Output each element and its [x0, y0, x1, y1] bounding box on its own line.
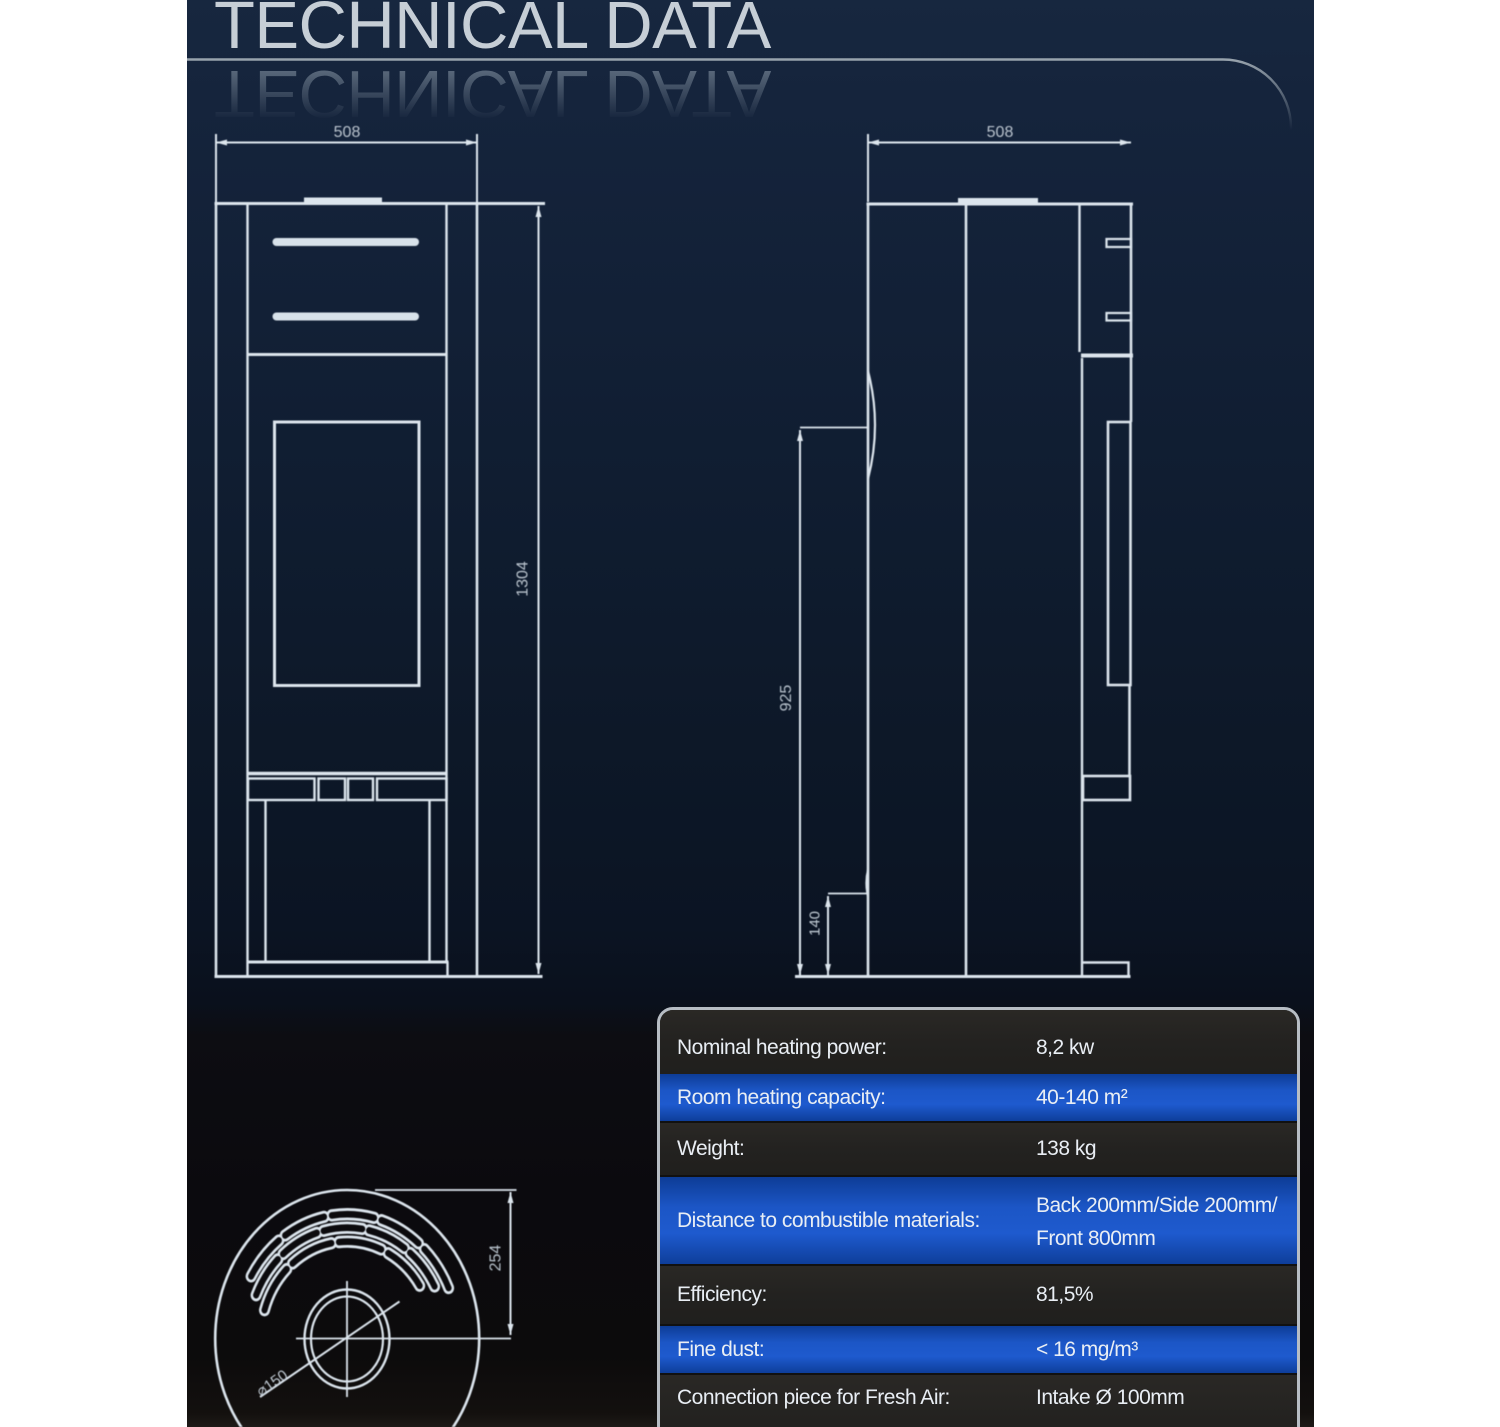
svg-text:925: 925 — [778, 685, 795, 712]
svg-text:508: 508 — [987, 124, 1014, 141]
svg-text:254: 254 — [488, 1245, 505, 1272]
svg-text:508: 508 — [334, 124, 361, 141]
svg-text:1304: 1304 — [515, 561, 532, 597]
svg-text:⌀150: ⌀150 — [253, 1367, 291, 1400]
svg-text:140: 140 — [807, 911, 824, 936]
